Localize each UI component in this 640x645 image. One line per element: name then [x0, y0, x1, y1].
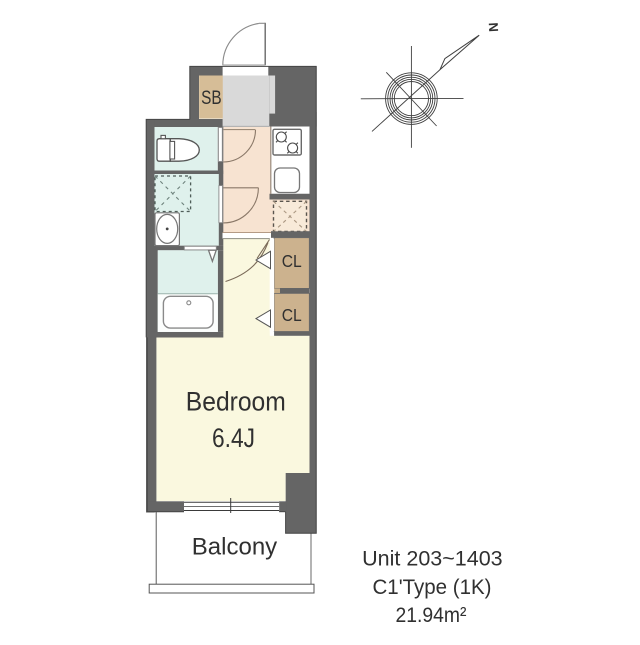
svg-text:Bedroom: Bedroom [186, 386, 286, 416]
svg-text:SB: SB [201, 88, 222, 109]
svg-text:CL: CL [282, 251, 302, 271]
svg-text:Balcony: Balcony [192, 534, 277, 561]
svg-text:21.94m²: 21.94m² [396, 604, 467, 627]
svg-text:CL: CL [282, 305, 302, 325]
svg-text:C1'Type (1K): C1'Type (1K) [373, 575, 492, 599]
svg-text:N: N [486, 22, 501, 32]
svg-text:6.4J: 6.4J [212, 423, 255, 453]
svg-text:Unit 203~1403: Unit 203~1403 [362, 547, 503, 571]
